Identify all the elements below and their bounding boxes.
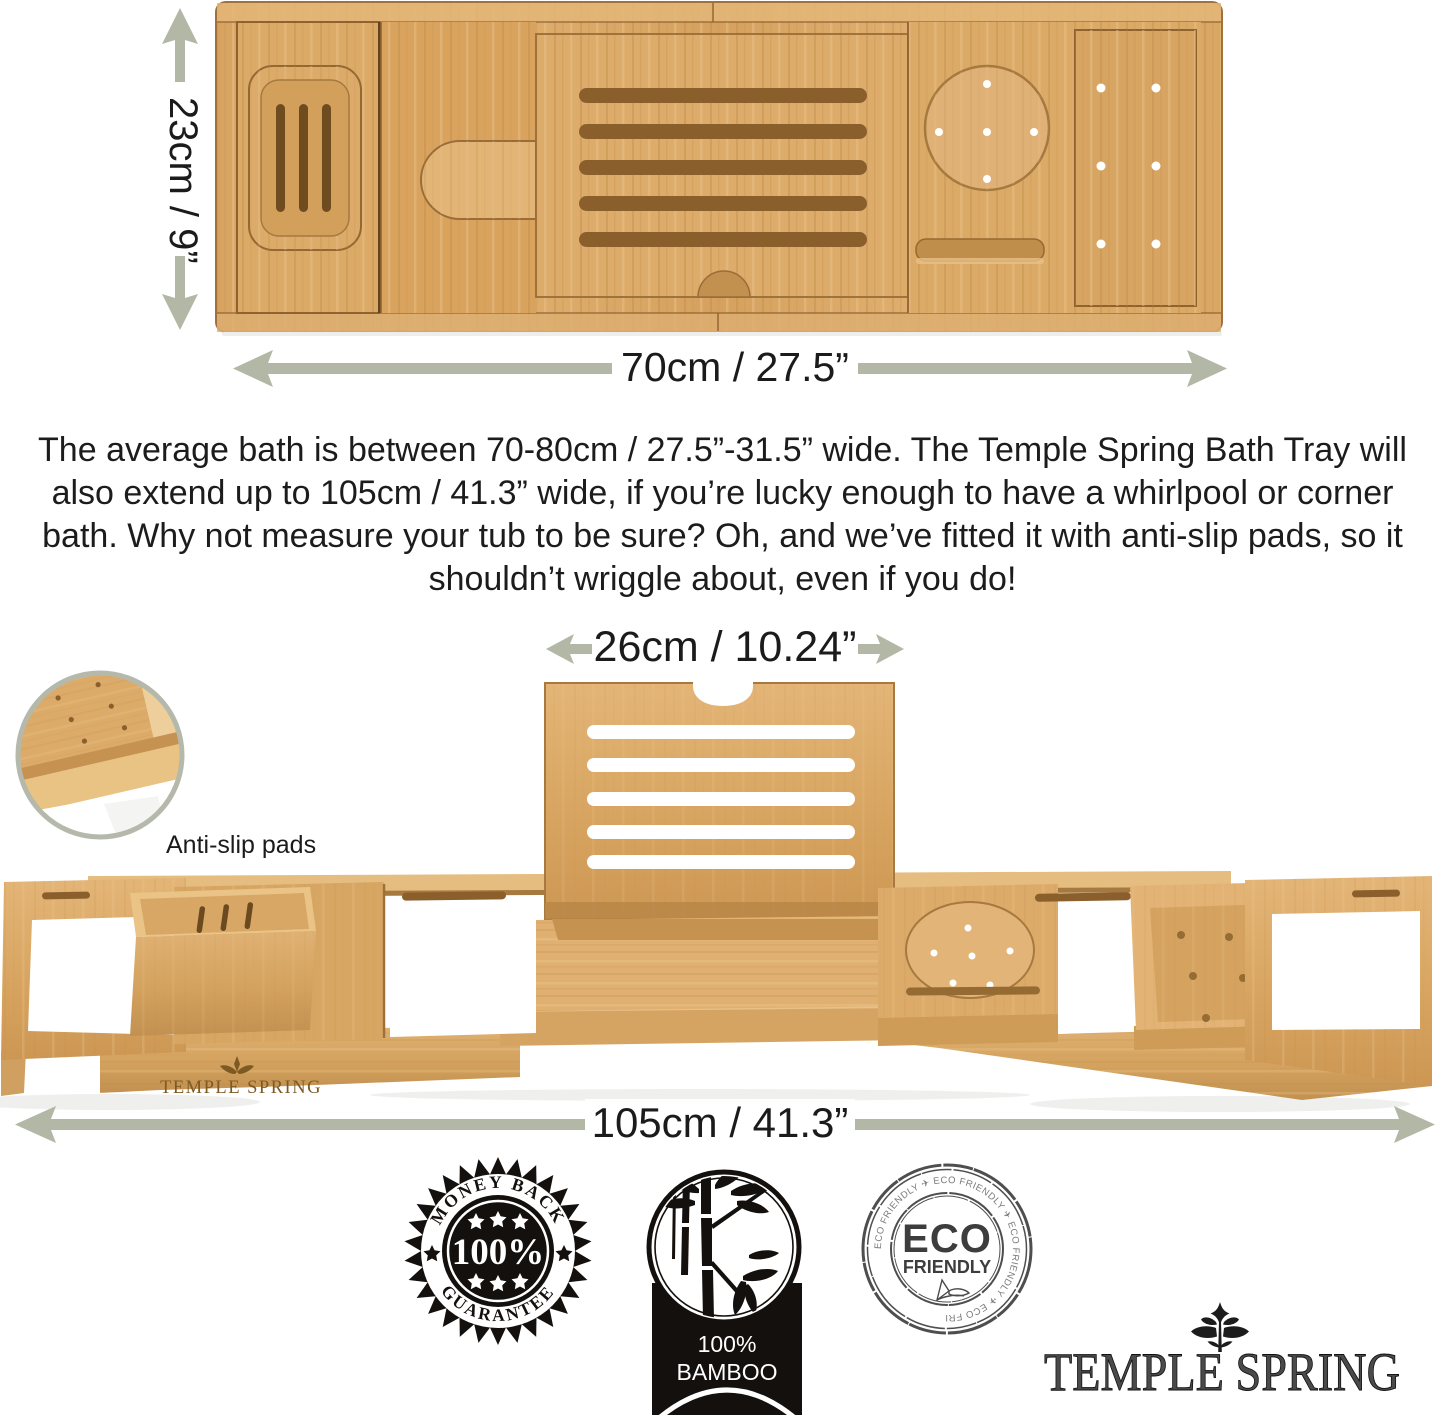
svg-text:FRIENDLY: FRIENDLY [903, 1257, 991, 1277]
svg-text:ECO: ECO [902, 1217, 992, 1261]
svg-text:TEMPLE SPRING: TEMPLE SPRING [1044, 1342, 1400, 1400]
svg-text:BAMBOO: BAMBOO [677, 1359, 778, 1385]
svg-text:TEMPLE SPRING: TEMPLE SPRING [160, 1078, 322, 1098]
svg-text:100%: 100% [698, 1331, 757, 1357]
svg-text:100%: 100% [452, 1232, 545, 1273]
